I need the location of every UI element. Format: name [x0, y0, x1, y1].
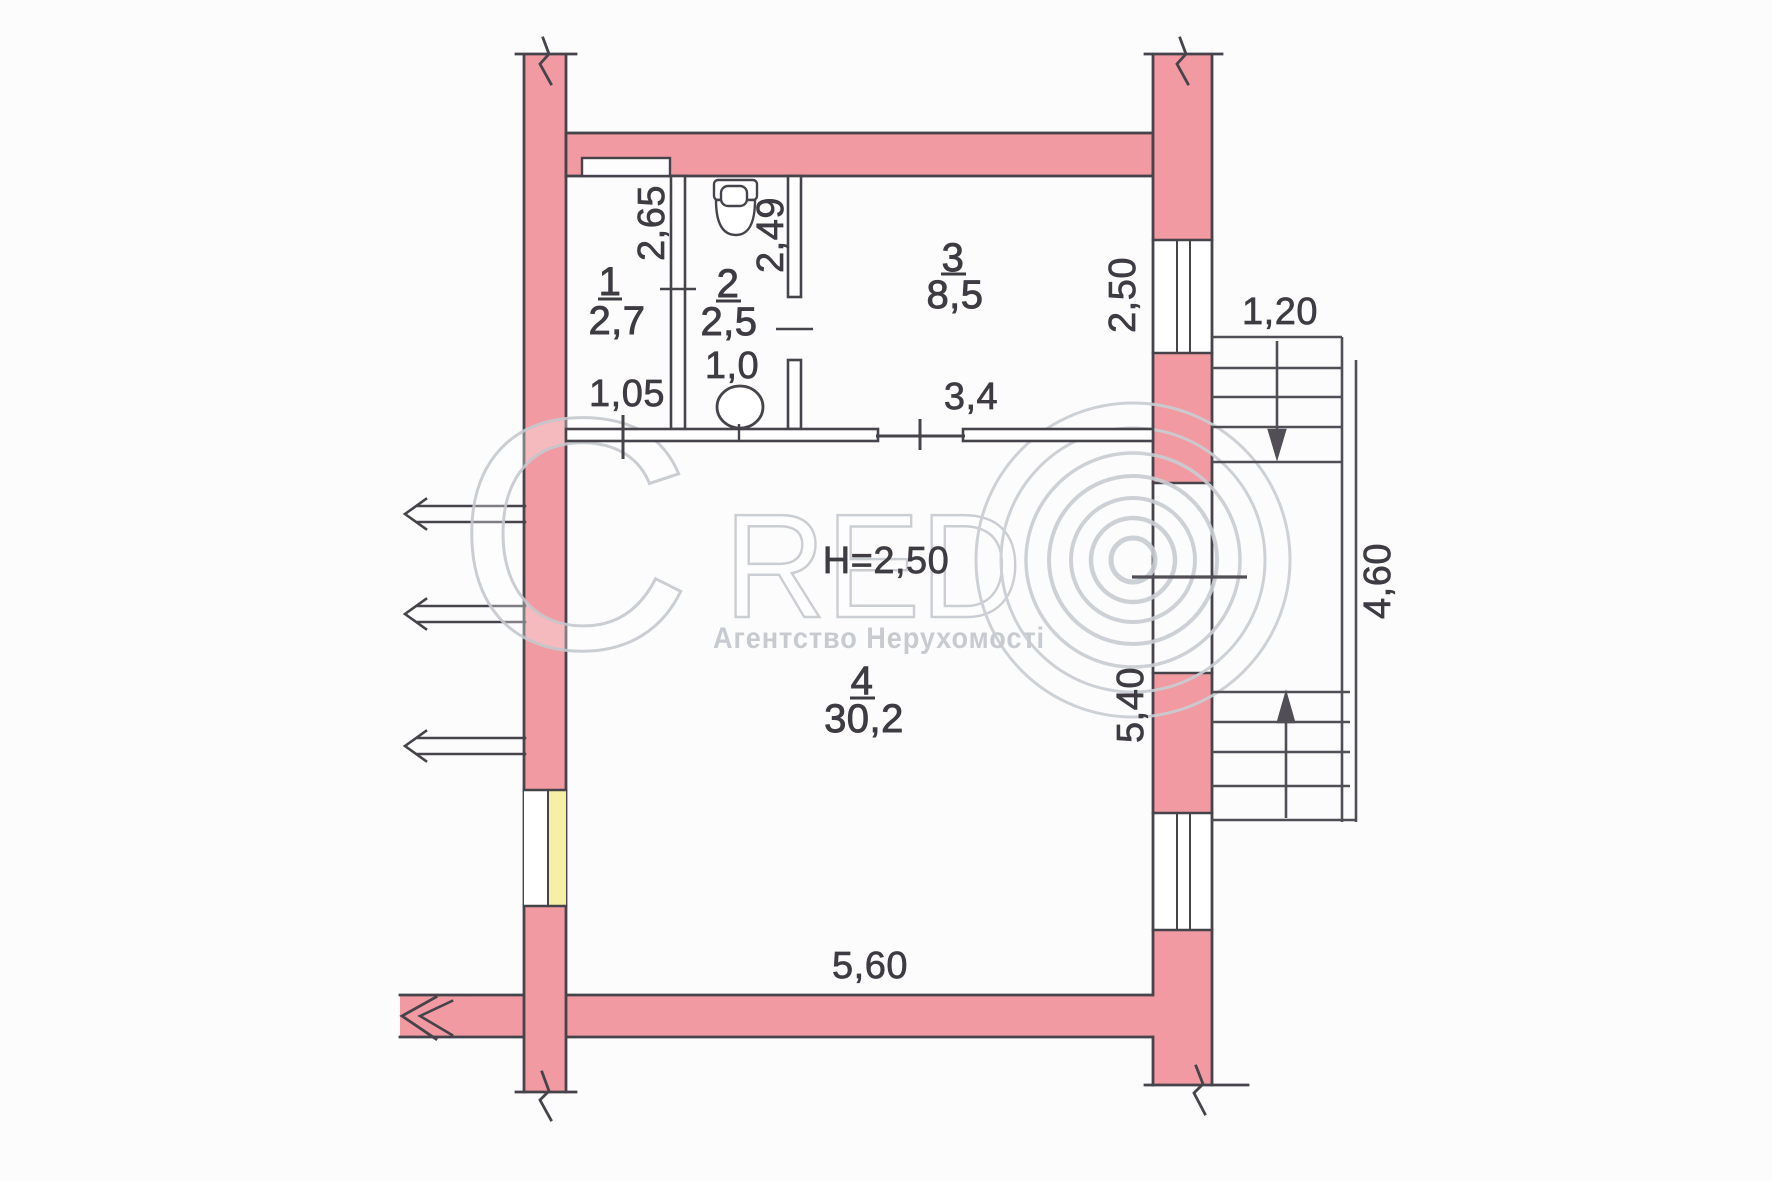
room-2-area: 2,5	[700, 300, 757, 344]
right-wall	[1153, 55, 1212, 1085]
left-wall-window	[524, 790, 566, 906]
stairs-down-arrow-icon	[1269, 430, 1285, 457]
dim-stairs-flight-width: 1,20	[1242, 291, 1318, 333]
room-4-area: 30,2	[824, 697, 904, 741]
arrow-break-icon	[405, 731, 426, 761]
dim-room3-depth: 2,50	[1102, 257, 1144, 333]
room-1-number: 1	[599, 260, 622, 304]
dim-room1-depth: 2,65	[631, 185, 673, 261]
floor-plan-drawing: C RED Агентство Нерухомості	[0, 0, 1772, 1181]
arrow-break-icon	[405, 599, 426, 629]
room-1-area: 2,7	[588, 299, 645, 343]
partition-horizontal-right	[963, 429, 1153, 441]
right-wall-window-lower	[1153, 813, 1212, 930]
partition-room1-room2	[671, 176, 685, 429]
ceiling-height-note: H=2,50	[823, 540, 950, 582]
room-3-area: 8,5	[926, 273, 983, 317]
dim-room1-width: 1,05	[589, 373, 665, 415]
dim-room4-depth: 5,40	[1110, 667, 1152, 743]
stairs-up-arrow-icon	[1278, 694, 1294, 722]
dim-room2-depth: 2,49	[750, 197, 792, 273]
partition-horizontal-left	[566, 429, 878, 441]
dim-room2-width: 1,0	[705, 345, 759, 387]
partition-room2-room3-lower	[788, 360, 801, 429]
dim-stairs-depth: 4,60	[1357, 543, 1399, 619]
dim-room4-width: 5,60	[832, 945, 908, 987]
room1-niche	[582, 158, 670, 176]
bottom-wall	[400, 995, 1153, 1037]
watermark-subtitle: Агентство Нерухомості	[713, 622, 1045, 655]
arrow-break-icon	[405, 499, 426, 529]
floor-plan-scan: C RED Агентство Нерухомості	[0, 0, 1772, 1181]
right-wall-window-upper	[1153, 240, 1212, 353]
dim-room3-width: 3,4	[944, 376, 998, 418]
